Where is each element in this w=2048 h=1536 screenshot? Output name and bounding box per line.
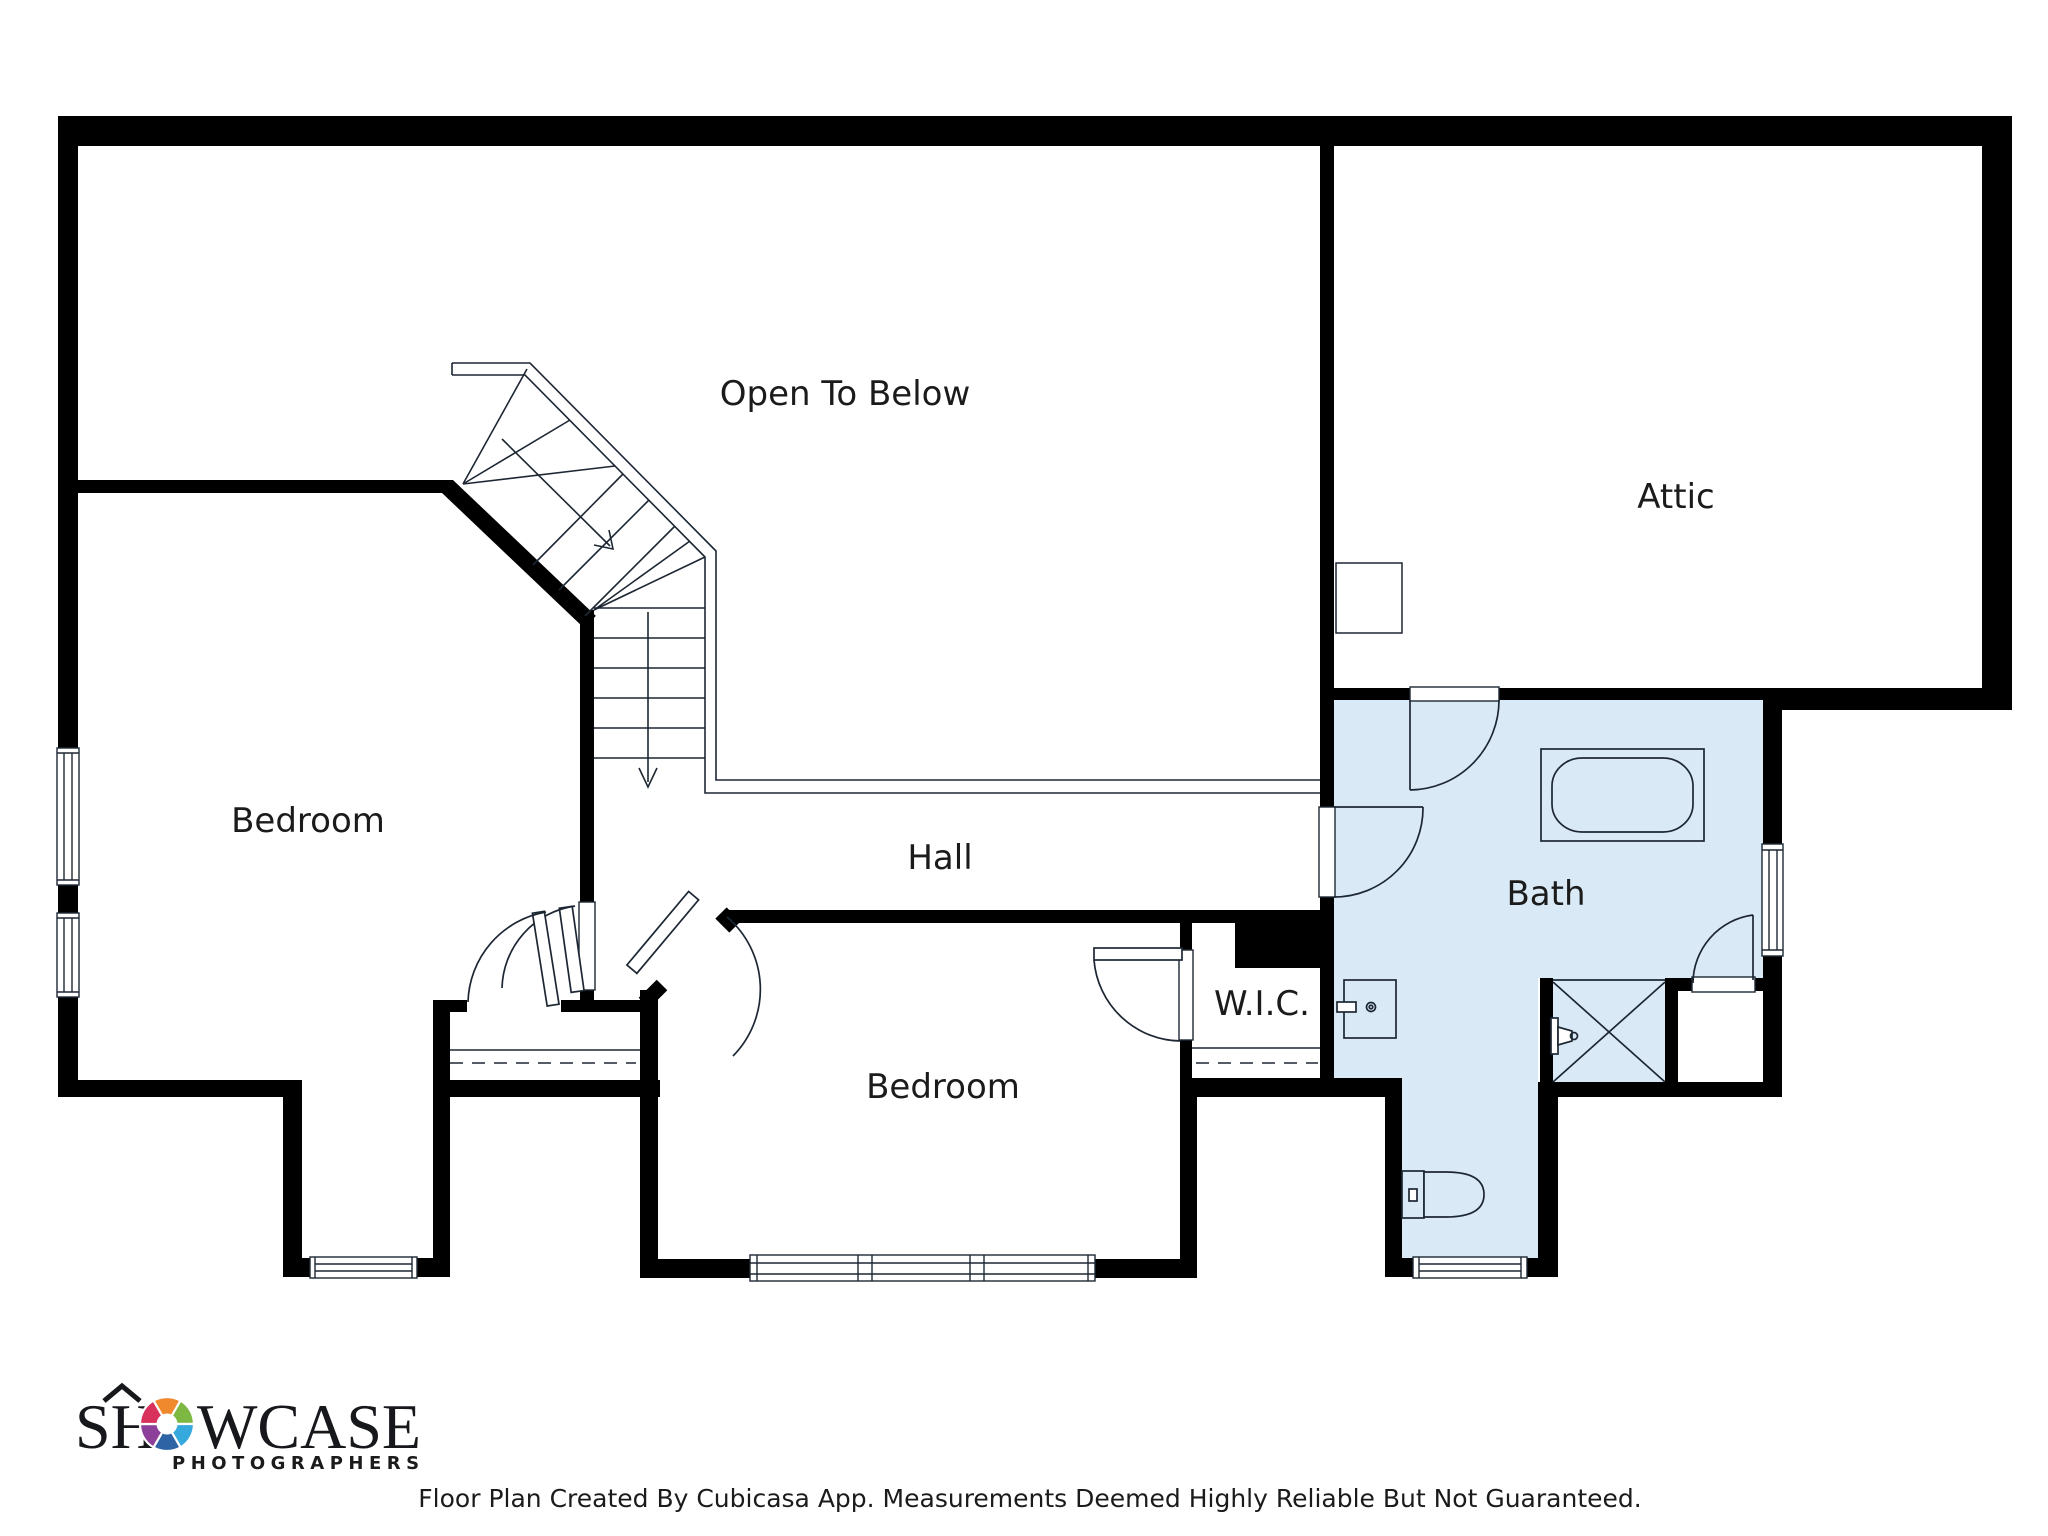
window-bedroom-left-lower bbox=[57, 913, 79, 997]
door-bedroom-left-closet bbox=[468, 911, 559, 1006]
door-wic bbox=[1094, 948, 1182, 1041]
walls bbox=[58, 116, 2012, 1278]
window-bedroom-center bbox=[750, 1255, 1095, 1281]
window-bedroom-left-upper bbox=[57, 748, 79, 885]
sink-vanity bbox=[1337, 980, 1396, 1038]
window-bay bbox=[310, 1257, 417, 1278]
attic-access-hatch bbox=[1336, 563, 1402, 633]
room-label-attic: Attic bbox=[1637, 477, 1714, 517]
camera-aperture-icon bbox=[140, 1397, 194, 1451]
window-bath-right bbox=[1762, 844, 1783, 956]
toilet bbox=[1402, 1171, 1484, 1218]
room-label-bedroom-center: Bedroom bbox=[866, 1067, 1020, 1107]
room-label-open-to-below: Open To Below bbox=[720, 374, 971, 414]
room-label-bedroom-left: Bedroom bbox=[231, 801, 385, 841]
room-label-bath: Bath bbox=[1506, 874, 1585, 914]
stair-direction-arrow-upper bbox=[502, 439, 613, 549]
window-bath-nook bbox=[1413, 1257, 1527, 1278]
logo-subtitle: PHOTOGRAPHERS bbox=[172, 1453, 425, 1474]
logo-text-right: WCASE bbox=[197, 1391, 421, 1462]
showcase-logo: SH WCASE PHOTOGRAPHERS bbox=[75, 1386, 425, 1474]
floor-plan-canvas: Open To Below Attic Bedroom Hall Bedroom… bbox=[0, 0, 2048, 1536]
room-label-hall: Hall bbox=[907, 838, 972, 878]
room-label-wic: W.I.C. bbox=[1214, 984, 1310, 1024]
footer-disclaimer: Floor Plan Created By Cubicasa App. Meas… bbox=[418, 1484, 1641, 1513]
